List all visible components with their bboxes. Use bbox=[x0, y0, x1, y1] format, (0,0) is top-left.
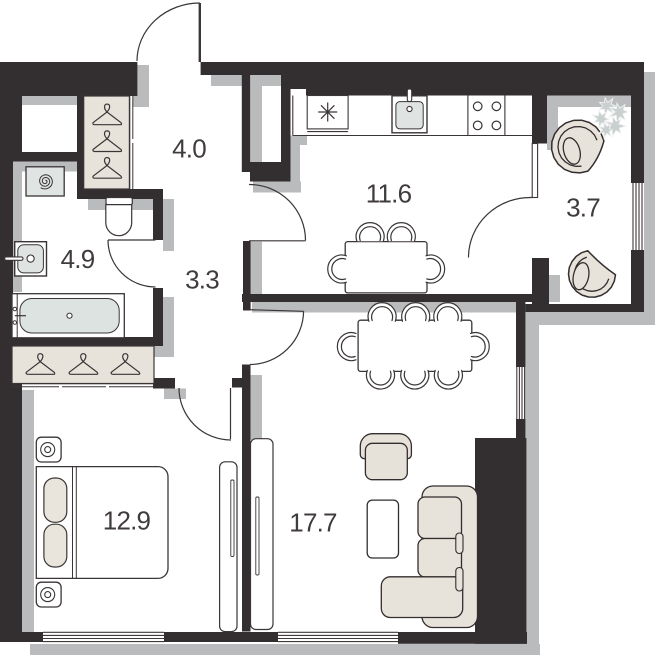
svg-text:3.3: 3.3 bbox=[185, 265, 219, 295]
svg-text:4.0: 4.0 bbox=[172, 134, 206, 164]
svg-text:4.9: 4.9 bbox=[61, 244, 95, 274]
svg-text:3.7: 3.7 bbox=[566, 193, 600, 223]
svg-text:11.6: 11.6 bbox=[366, 179, 412, 209]
svg-text:12.9: 12.9 bbox=[103, 506, 151, 536]
svg-text:17.7: 17.7 bbox=[289, 508, 337, 538]
